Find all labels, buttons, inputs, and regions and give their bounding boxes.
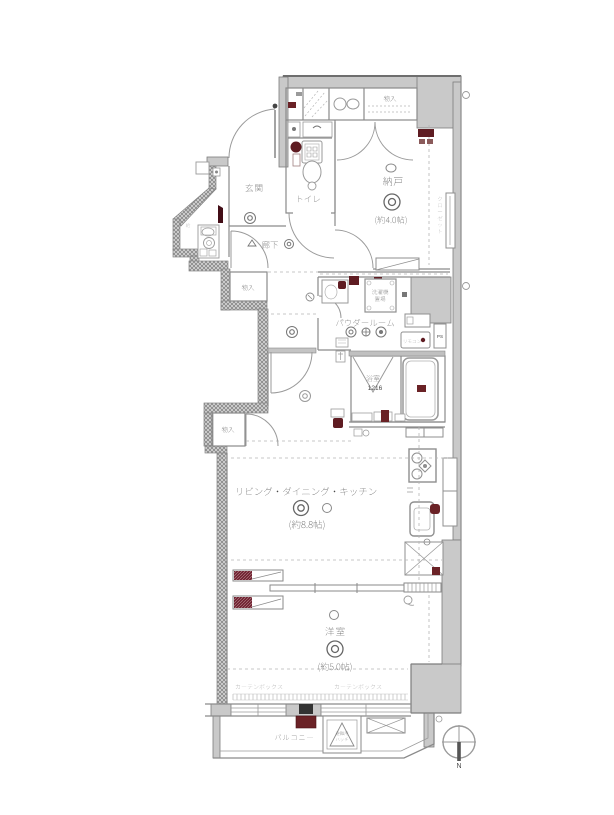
svg-text:PS: PS <box>437 334 443 339</box>
svg-text:N: N <box>456 763 461 770</box>
svg-text:1216: 1216 <box>368 385 383 392</box>
